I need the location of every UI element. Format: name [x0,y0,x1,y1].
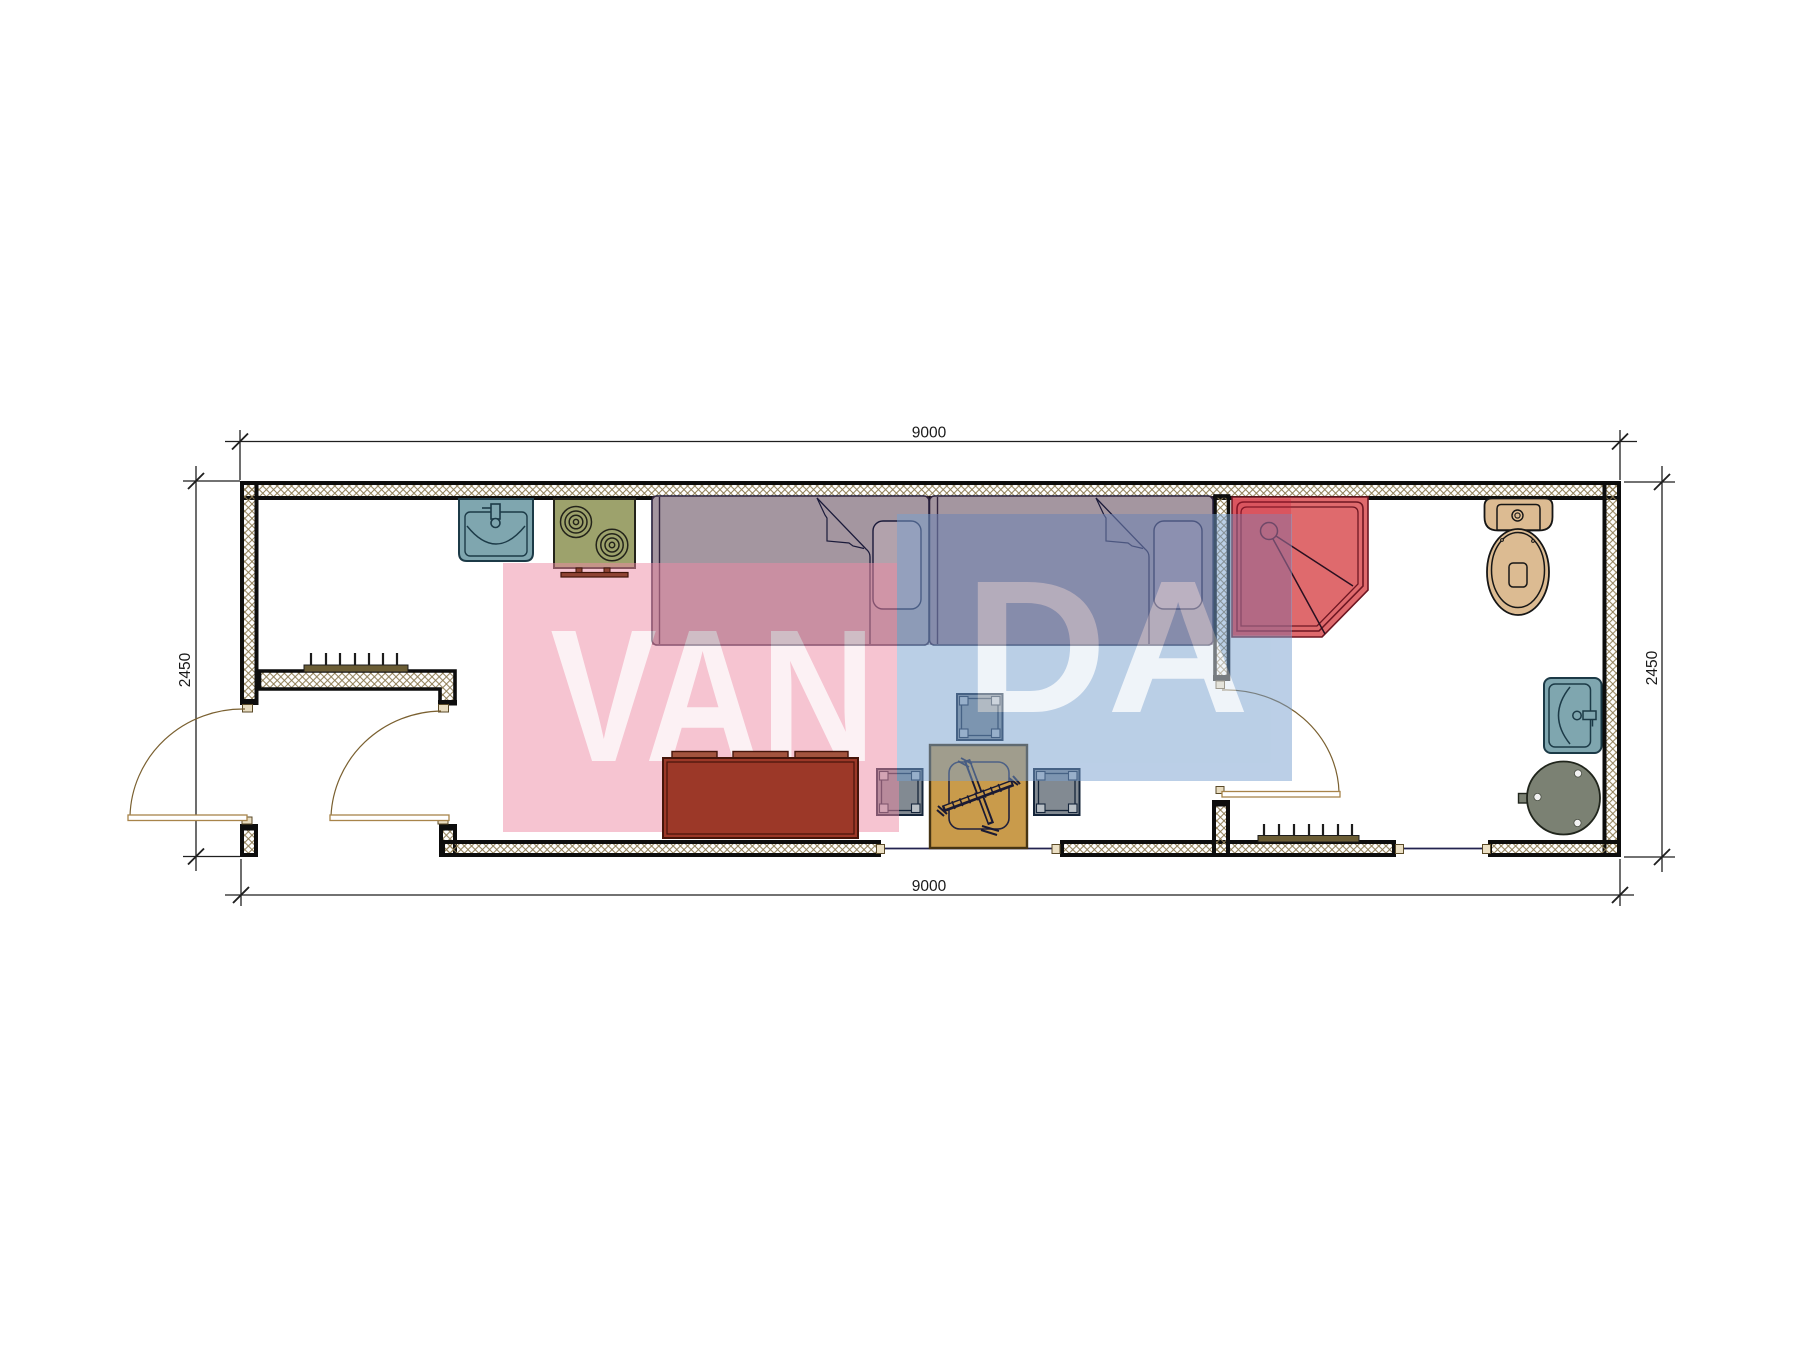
svg-text:2450: 2450 [177,652,194,687]
svg-text:9000: 9000 [912,878,947,895]
svg-text:9000: 9000 [912,425,947,442]
svg-text:2450: 2450 [1644,650,1661,685]
